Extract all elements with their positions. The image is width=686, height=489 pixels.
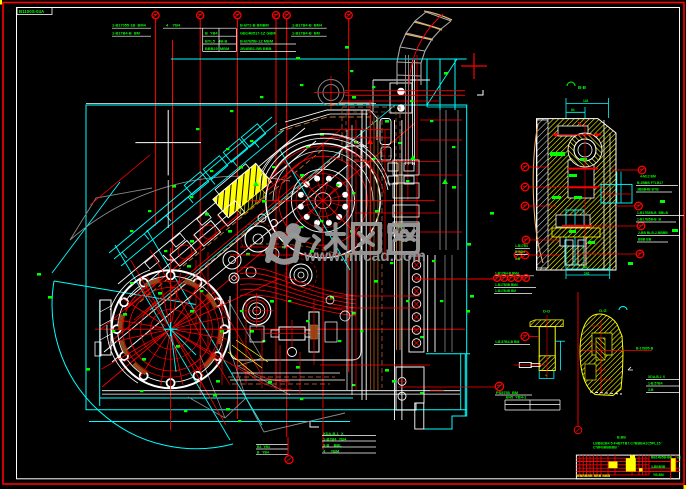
svg-text:3-BBB5B: 3-BBB5B bbox=[651, 465, 666, 469]
svg-text:1-B17055-1B BM4: 1-B17055-1B BM4 bbox=[112, 23, 147, 28]
svg-text:M2: M2 bbox=[583, 265, 588, 269]
svg-text:B YB4: B YB4 bbox=[205, 31, 218, 36]
svg-text:84: 84 bbox=[571, 108, 575, 112]
svg-text:1-B17B4B BM: 1-B17B4B BM bbox=[495, 289, 516, 293]
svg-text:XDA-B-1 X: XDA-B-1 X bbox=[323, 431, 344, 436]
svg-text:G-G: G-G bbox=[599, 308, 607, 313]
svg-text:B45 YB4-1: B45 YB4-1 bbox=[506, 395, 527, 400]
svg-text:B4 YB4: B4 YB4 bbox=[257, 445, 270, 449]
svg-text:144: 144 bbox=[583, 99, 589, 103]
svg-text:4 YB4: 4 YB4 bbox=[166, 23, 181, 28]
svg-text:1-B17B4-B BM: 1-B17B4-B BM bbox=[112, 31, 140, 36]
svg-text:3BBB4B BYB: 3BBB4B BYB bbox=[637, 188, 659, 192]
svg-text:B-BB4: B-BB4 bbox=[515, 250, 525, 254]
svg-text:BBBBBB BBB BBB: BBBBBB BBB BBB bbox=[577, 474, 611, 478]
svg-text:D-D: D-D bbox=[543, 309, 550, 314]
svg-text:BB14B5B-BB: BB14B5B-BB bbox=[651, 456, 673, 460]
svg-text:YB-BM: YB-BM bbox=[653, 473, 664, 477]
svg-text:B-B: B-B bbox=[578, 85, 587, 90]
svg-text:3-B: 3-B bbox=[648, 388, 654, 392]
svg-text:BBB25 MBM: BBB25 MBM bbox=[205, 46, 229, 51]
svg-text:B.BB: B.BB bbox=[617, 435, 626, 439]
svg-text:C'BFBBBBBB ': C'BFBBBBBB ' bbox=[593, 446, 619, 450]
svg-text:B-2BBB FTLB17: B-2BBB FTLB17 bbox=[637, 181, 663, 185]
svg-text:4 YBM: 4 YBM bbox=[323, 448, 339, 453]
svg-text:1-B17B5B-B B: 1-B17B5B-B B bbox=[637, 218, 661, 222]
svg-text:B4: B4 bbox=[677, 456, 681, 460]
svg-text:BBB BB: BBB BB bbox=[638, 238, 652, 242]
svg-text:LBBB2B4 5-F4B7TB7.C7BBBA2C5PL1: LBBB2B4 5-F4B7TB7.C7BBBA2C5PL15 ' bbox=[593, 441, 662, 445]
svg-text:GB14B517-1Z GBM: GB14B517-1Z GBM bbox=[240, 31, 275, 36]
svg-text:B-BT2-B BMBM: B-BT2-B BMBM bbox=[240, 23, 269, 28]
svg-text:1-B17B5B BM4: 1-B17B5B BM4 bbox=[495, 283, 518, 287]
svg-text:BYL5 4B-B: BYL5 4B-B bbox=[205, 39, 227, 44]
svg-text:1-B17B4-B BM4: 1-B17B4-B BM4 bbox=[292, 23, 323, 28]
svg-text:1-B17B4: 1-B17B4 bbox=[515, 244, 528, 248]
svg-text:1-B.57B4-B BM: 1-B.57B4-B BM bbox=[495, 340, 519, 344]
svg-text:B-B7B5B-1Z MBM: B-B7B5B-1Z MBM bbox=[240, 39, 273, 44]
svg-text:2B4BB1-BB BBB: 2B4BB1-BB BBB bbox=[240, 46, 272, 51]
svg-text:3-B: 3-B bbox=[515, 257, 521, 261]
svg-text:www.mfcad.com: www.mfcad.com bbox=[303, 248, 426, 265]
svg-text:B YB4: B YB4 bbox=[257, 451, 269, 455]
svg-text:4-M12 BM: 4-M12 BM bbox=[640, 175, 656, 179]
svg-text:142: 142 bbox=[584, 272, 590, 276]
svg-text:1-B7B4 YB4: 1-B7B4 YB4 bbox=[323, 436, 347, 441]
svg-text:1-B.57B4: 1-B.57B4 bbox=[648, 382, 663, 386]
svg-text:1-B17B5B-B BBLB: 1-B17B5B-B BBLB bbox=[637, 211, 668, 215]
svg-text:B-17B05-B: B-17B05-B bbox=[636, 347, 654, 351]
svg-text:3-B BBL: 3-B BBL bbox=[323, 442, 342, 447]
svg-text:B1100S-04A: B1100S-04A bbox=[19, 9, 45, 14]
svg-text:1-B17B4-B BM: 1-B17B4-B BM bbox=[292, 31, 320, 36]
svg-text:XDA-B-1 X: XDA-B-1 X bbox=[648, 375, 666, 379]
svg-text:2-BB BLB-2-BBBB: 2-BB BLB-2-BBBB bbox=[638, 231, 668, 235]
